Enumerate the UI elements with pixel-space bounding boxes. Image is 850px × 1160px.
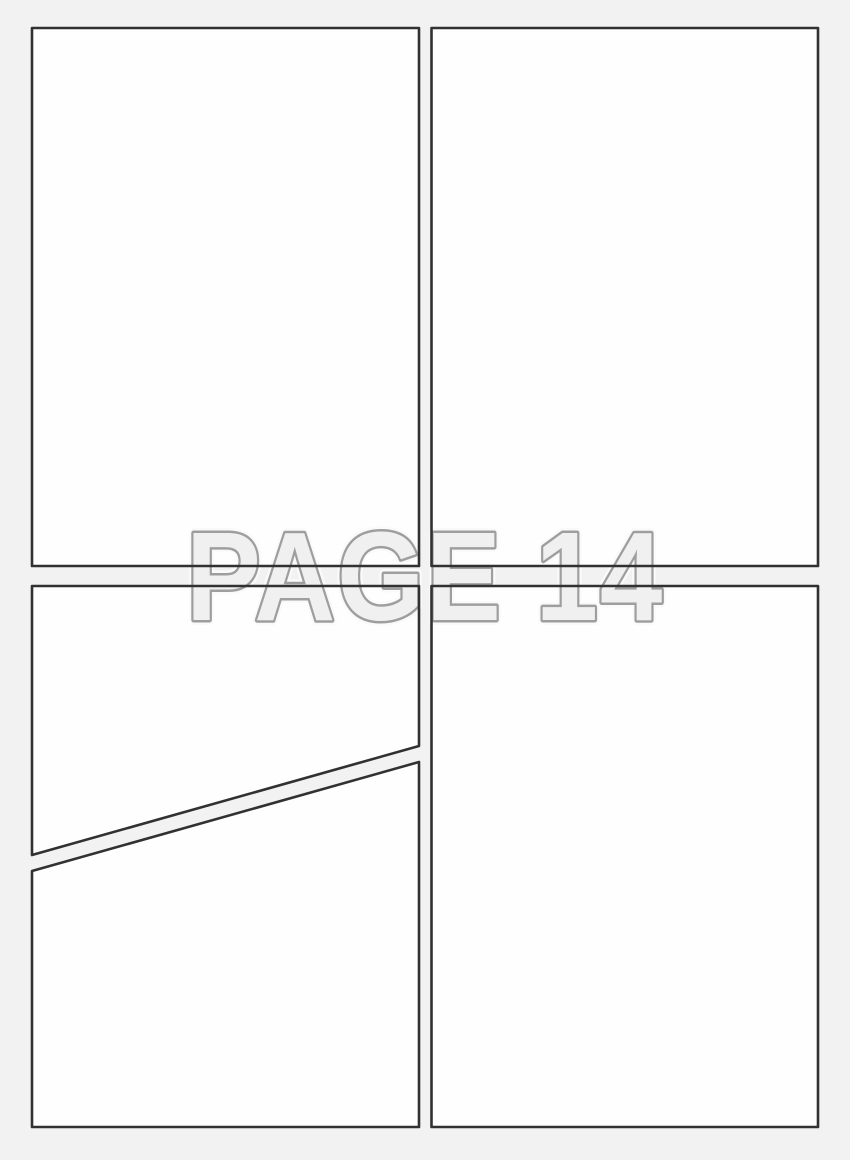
page-label-group: PAGE 14 PAGE 14 <box>186 506 664 647</box>
panel-1-fill <box>32 28 419 566</box>
page-label: PAGE 14 <box>186 506 664 647</box>
panel-5-fill <box>432 586 819 1127</box>
comic-page-template: PAGE 14 PAGE 14 <box>0 0 850 1160</box>
panel-2-fill <box>432 28 819 566</box>
